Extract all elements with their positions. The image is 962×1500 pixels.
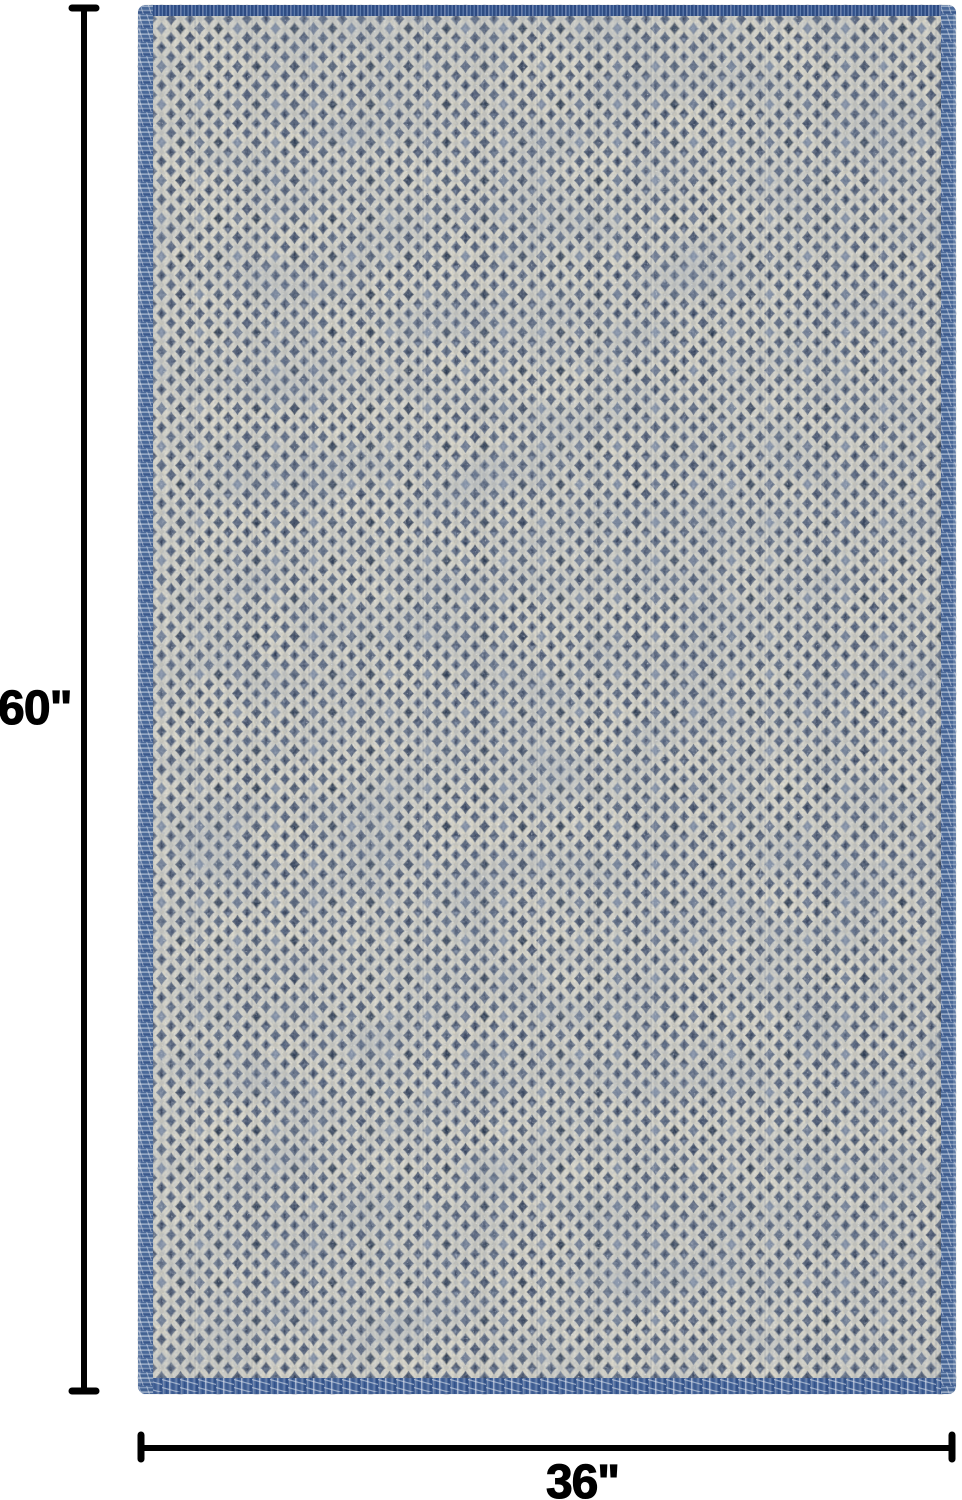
svg-text:36": 36" — [546, 1456, 619, 1500]
svg-text:60": 60" — [0, 682, 72, 735]
